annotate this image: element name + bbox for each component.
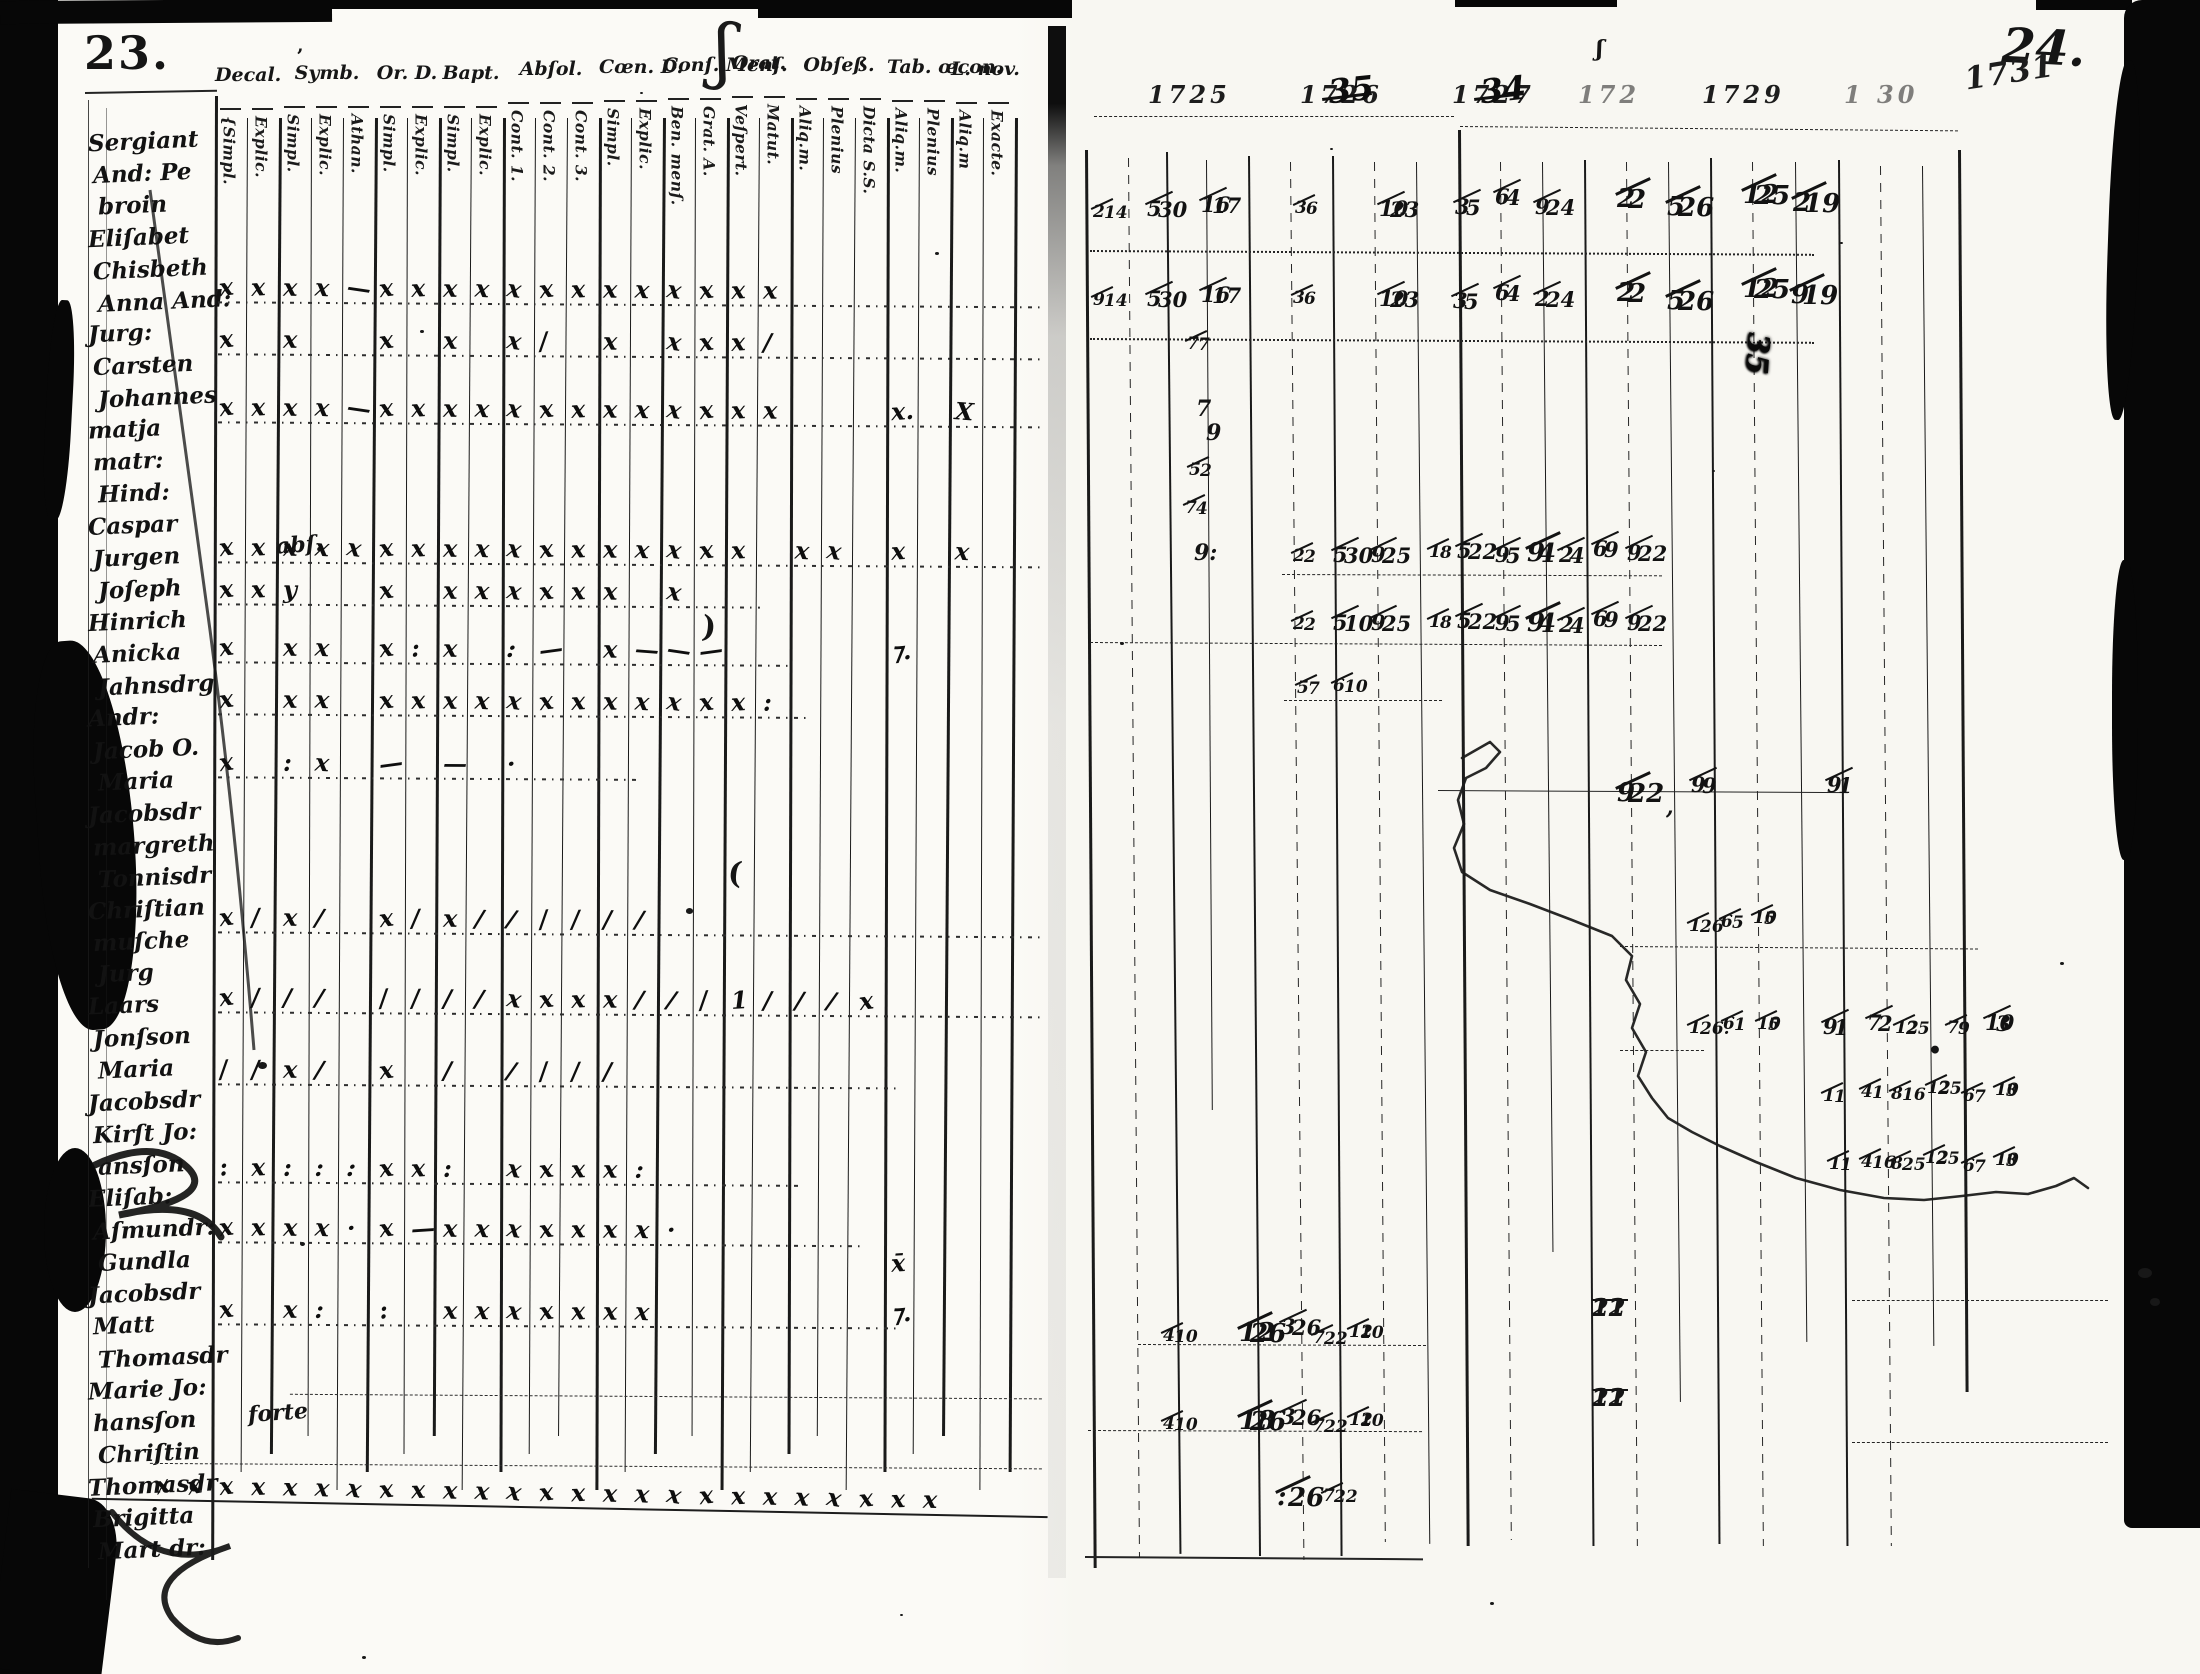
tally-mark: x bbox=[665, 329, 683, 355]
tally-mark: / bbox=[505, 907, 517, 932]
grid-line bbox=[211, 96, 217, 1560]
tally-mark: : bbox=[634, 1158, 645, 1183]
tally-mark: x bbox=[314, 750, 330, 775]
grid-line bbox=[1128, 158, 1140, 1558]
ink-speck bbox=[935, 252, 939, 255]
tally-mark: x bbox=[377, 578, 394, 604]
tally-mark: x bbox=[443, 689, 457, 713]
tally-mark: x bbox=[474, 1479, 490, 1504]
row-baseline bbox=[218, 561, 1042, 568]
tally-mark: x bbox=[443, 397, 457, 421]
tally-mark: x bbox=[634, 397, 650, 422]
tally-mark: x bbox=[505, 986, 523, 1012]
subcolumn-label: Simpl. bbox=[284, 114, 300, 173]
row-rule bbox=[1852, 1300, 2108, 1301]
year-label: 172 bbox=[1578, 80, 1640, 109]
tally-mark: x bbox=[730, 398, 746, 423]
fraction-denominator: 25 bbox=[1902, 1157, 1926, 1174]
fraction-denominator: 1 bbox=[1834, 1017, 1849, 1038]
tally-mark: x bbox=[890, 539, 906, 564]
column-group-label: Abſol. bbox=[503, 58, 599, 80]
tally-mark: / bbox=[314, 986, 325, 1011]
tally-mark: / bbox=[505, 1059, 517, 1084]
tally-mark: x bbox=[763, 399, 777, 423]
tally-mark: x bbox=[505, 578, 523, 604]
fraction-denominator: 30 bbox=[1158, 199, 1187, 220]
tally-mark: x bbox=[697, 397, 714, 423]
tally-mark: x bbox=[443, 1217, 457, 1241]
tally-mark: 1 bbox=[730, 988, 748, 1013]
tally-mark: x bbox=[505, 1298, 523, 1324]
tally-mark: x bbox=[603, 1482, 618, 1506]
year-label: 1 30 bbox=[1844, 80, 1918, 109]
tally-mark: / bbox=[763, 331, 772, 355]
column-group-label: Symb. bbox=[279, 62, 375, 84]
subcolumn-dash bbox=[444, 106, 465, 108]
tally-mark: / bbox=[794, 989, 805, 1014]
tally-mark: x bbox=[377, 536, 394, 562]
mark-row: xxxx:x:—x———⁊. bbox=[0, 632, 2200, 679]
subcolumn-dash bbox=[348, 106, 369, 108]
tally-mark: x bbox=[410, 396, 426, 421]
tally-mark: x bbox=[570, 579, 586, 604]
tally-mark: x bbox=[377, 276, 394, 302]
fraction-denominator: 10 bbox=[1174, 1417, 1198, 1434]
tally-mark: x bbox=[443, 637, 457, 661]
name-entry: Jacobsdr bbox=[87, 798, 200, 830]
tally-mark: x bbox=[537, 986, 554, 1012]
subcolumn-label: {Simpl. bbox=[220, 116, 236, 185]
tally-mark: x bbox=[570, 1217, 586, 1242]
scan-border-top-right bbox=[1455, 0, 1617, 7]
fraction-denominator: 17 bbox=[1212, 285, 1241, 306]
fraction-denominator: 4 bbox=[1506, 283, 1521, 304]
row-baseline bbox=[218, 421, 1042, 428]
tally-mark: / bbox=[314, 1058, 325, 1083]
subcolumn-dash bbox=[412, 106, 433, 108]
tally-mark: x bbox=[603, 580, 617, 604]
tally-mark: x bbox=[250, 1475, 266, 1500]
tally-mark: x bbox=[603, 278, 617, 302]
tally-mark: · bbox=[345, 1216, 357, 1241]
row-baseline bbox=[218, 301, 1042, 308]
tally-mark: x bbox=[474, 276, 490, 301]
tally-mark: x bbox=[603, 1158, 617, 1182]
subcolumn-dash bbox=[732, 96, 753, 98]
tally-mark: : bbox=[283, 1156, 292, 1180]
tally-mark: x bbox=[377, 1156, 394, 1182]
fraction-denominator: 19 bbox=[1804, 191, 1840, 217]
handwritten-mark: , bbox=[1666, 794, 1674, 820]
tally-mark: x bbox=[570, 1157, 586, 1182]
tally-mark: x bbox=[250, 577, 266, 602]
tally-mark: x bbox=[537, 536, 554, 562]
tally-mark: x bbox=[697, 689, 714, 715]
tally-mark: x bbox=[570, 987, 586, 1012]
tally-mark: x bbox=[665, 277, 683, 303]
tally-mark: : bbox=[283, 751, 292, 775]
grid-line bbox=[595, 118, 601, 1490]
tally-mark: x bbox=[603, 398, 617, 422]
row-rule bbox=[1852, 1442, 2108, 1443]
tally-mark: x bbox=[570, 397, 586, 422]
tally-mark: — bbox=[378, 750, 405, 777]
fraction-denominator: 1 bbox=[1734, 1017, 1746, 1034]
row-baseline bbox=[150, 1463, 1042, 1469]
tally-mark: x bbox=[505, 536, 523, 562]
name-entry: Jonſson bbox=[92, 1022, 191, 1053]
tally-mark: x bbox=[283, 1475, 298, 1499]
fraction-denominator: 26 bbox=[1288, 1485, 1324, 1511]
subcolumn-dash bbox=[476, 106, 497, 108]
handwritten-mark: 9: bbox=[1194, 540, 1217, 566]
mark-row: xxyxxxxxxxx bbox=[0, 574, 2200, 621]
page-gutter-shadow bbox=[1048, 26, 1066, 1578]
handwritten-mark: 7 bbox=[1196, 396, 1211, 422]
tally-mark: x bbox=[603, 690, 617, 714]
subcolumn-dash bbox=[988, 102, 1009, 104]
subcolumn-dash bbox=[700, 98, 721, 100]
row-baseline bbox=[290, 1394, 1042, 1400]
subcolumn-label: Simpl. bbox=[604, 108, 620, 167]
subcolumn-label: Simpl. bbox=[380, 114, 396, 173]
tally-mark: : bbox=[505, 637, 517, 662]
subcolumn-label: Aliq.m. bbox=[796, 106, 812, 171]
subcolumn-dash bbox=[860, 98, 881, 100]
fraction-denominator: 30 bbox=[1158, 289, 1187, 310]
tally-mark: : bbox=[345, 1156, 357, 1181]
tally-mark: — bbox=[345, 275, 372, 302]
subcolumn-label: Grat. A. bbox=[700, 106, 716, 177]
grid-line bbox=[88, 100, 89, 1568]
fraction-denominator: 23 bbox=[1390, 289, 1419, 310]
handwritten-note: ʃ bbox=[709, 7, 739, 93]
subcolumn-dash bbox=[252, 108, 273, 110]
tally-mark: — bbox=[665, 637, 692, 664]
fraction-denominator: 3 bbox=[2006, 1153, 2018, 1170]
fraction-denominator: 22 bbox=[1638, 543, 1667, 564]
subcolumn-label: Explic. bbox=[252, 116, 268, 178]
ink-speck bbox=[1840, 242, 1843, 244]
tally-mark: x bbox=[377, 1216, 394, 1242]
tally-mark: x bbox=[217, 1297, 234, 1323]
tally-mark: x bbox=[250, 395, 266, 420]
tally-mark: x bbox=[443, 537, 457, 561]
tally-mark: x bbox=[474, 578, 490, 603]
row-rule bbox=[1282, 574, 1662, 576]
fraction-denominator: 26 bbox=[1678, 289, 1714, 315]
handwritten-mark: 35 bbox=[1738, 331, 1776, 375]
tally-mark: x bbox=[505, 1156, 523, 1182]
fraction-denominator: 9 bbox=[1958, 1021, 1970, 1038]
column-group-label: Decal. bbox=[215, 64, 279, 86]
mark-row: xxxxx/xxxx/ bbox=[0, 324, 2200, 371]
tally-mark: / bbox=[250, 985, 260, 1010]
handwritten-note: ( bbox=[726, 855, 744, 891]
tally-mark: x bbox=[603, 1300, 617, 1324]
subcolumn-label: Explic. bbox=[316, 114, 332, 176]
tally-mark: · bbox=[665, 1218, 677, 1243]
row-rule bbox=[1090, 250, 1814, 256]
tally-mark: x bbox=[537, 276, 554, 302]
subcolumn-dash bbox=[892, 100, 913, 102]
tally-mark: x bbox=[443, 579, 457, 603]
fraction-denominator: 5 bbox=[1764, 911, 1776, 928]
tally-mark: x bbox=[283, 906, 297, 930]
tally-mark: x bbox=[537, 396, 554, 422]
tally-mark: x bbox=[634, 1482, 650, 1507]
tally-mark: / bbox=[217, 1057, 229, 1082]
tally-mark: x bbox=[377, 396, 394, 422]
fraction-denominator: 4 bbox=[1570, 615, 1585, 636]
tally-mark: : bbox=[763, 691, 772, 715]
tally-mark: / bbox=[570, 1059, 580, 1084]
tally-mark: / bbox=[825, 989, 837, 1014]
fraction-denominator: 24 bbox=[1546, 197, 1575, 218]
tally-mark: / bbox=[410, 906, 420, 931]
tally-mark: x bbox=[443, 1299, 457, 1323]
tally-mark: : bbox=[443, 1157, 452, 1181]
tally-mark: x bbox=[537, 688, 554, 714]
tally-mark: / bbox=[377, 986, 389, 1011]
tally-mark: x bbox=[794, 1485, 810, 1510]
tally-mark: x bbox=[314, 535, 330, 560]
tally-mark: / bbox=[665, 988, 677, 1013]
fraction-denominator: 9 bbox=[1702, 775, 1717, 796]
fraction-denominator: 7 bbox=[1308, 681, 1320, 698]
fraction-denominator: 9 bbox=[1604, 539, 1619, 560]
fraction-denominator: 4 bbox=[1196, 501, 1208, 518]
tally-mark: x bbox=[954, 539, 970, 564]
tally-mark: x bbox=[314, 687, 330, 712]
scan-border-top-mid bbox=[330, 0, 762, 9]
name-entry: hansſon bbox=[92, 1406, 196, 1437]
tally-mark: x bbox=[217, 327, 234, 353]
column-group-label: Or. D. bbox=[375, 62, 439, 84]
stack-value: 21 bbox=[1592, 1386, 1625, 1410]
tally-mark: x bbox=[730, 330, 746, 355]
fraction-denominator: 2 bbox=[1878, 1013, 1893, 1034]
column-group-label: L. nov. bbox=[951, 58, 1015, 80]
fraction-denominator: 24 bbox=[1546, 289, 1575, 310]
tally-mark: x bbox=[217, 577, 234, 603]
tally-mark: x bbox=[634, 1217, 650, 1242]
column-group-label: Bapt. bbox=[439, 62, 503, 84]
tally-mark: x bbox=[730, 1484, 746, 1509]
tally-mark: x bbox=[443, 907, 457, 931]
subcolumn-dash bbox=[764, 96, 785, 98]
tally-mark: x bbox=[283, 276, 297, 300]
tally-mark: x̄ bbox=[890, 1251, 906, 1276]
tally-mark: / bbox=[603, 908, 612, 932]
tally-mark: x bbox=[443, 277, 457, 301]
tally-mark: / bbox=[570, 907, 580, 932]
tally-mark: x bbox=[217, 985, 234, 1011]
ink-speck bbox=[300, 1242, 305, 1246]
tally-mark: x bbox=[185, 1473, 204, 1499]
column-group-label: Tab. œcon. bbox=[887, 56, 951, 78]
tally-mark: — bbox=[410, 1216, 435, 1241]
handwritten-note: forte bbox=[247, 1398, 309, 1428]
fraction-denominator: 3 bbox=[1996, 1013, 2011, 1034]
tally-mark: : bbox=[314, 1298, 325, 1323]
grid-line bbox=[846, 118, 857, 1490]
tally-mark: — bbox=[698, 637, 725, 664]
tally-mark: x bbox=[505, 688, 523, 714]
fraction-denominator: 25 bbox=[1754, 183, 1790, 209]
tally-mark: X bbox=[954, 399, 974, 424]
tally-mark: / bbox=[443, 1059, 452, 1083]
fraction-denominator: 23 bbox=[1390, 199, 1419, 220]
row-baseline bbox=[218, 1083, 900, 1089]
subcolumn-dash bbox=[636, 100, 657, 102]
mark-row: xxxx—xxxxxxxxxxxxxx.X bbox=[0, 392, 2200, 439]
ink-speck bbox=[900, 1614, 903, 1616]
scan-border-top-far-right bbox=[2036, 0, 2132, 10]
tally-mark: x bbox=[603, 988, 617, 1012]
fraction-denominator: 25 bbox=[1382, 545, 1411, 566]
fraction-denominator: 3 bbox=[2006, 1083, 2018, 1100]
tally-mark: x. bbox=[890, 399, 914, 424]
tally-mark: — bbox=[538, 636, 565, 663]
grid-line bbox=[462, 118, 473, 1490]
tally-mark: x bbox=[410, 1478, 426, 1503]
subcolumn-label: Cont. 3. bbox=[572, 110, 588, 182]
fraction-denominator: 10 bbox=[1344, 679, 1368, 696]
fraction-denominator: 22 bbox=[1468, 541, 1497, 562]
subcolumn-dash bbox=[604, 100, 625, 102]
subcolumn-dash bbox=[572, 102, 593, 104]
tally-mark: x bbox=[152, 1472, 172, 1499]
tally-mark: x bbox=[474, 688, 490, 713]
tally-mark: x bbox=[314, 1476, 330, 1501]
tally-mark: x bbox=[283, 636, 297, 660]
column-group-label: Orat. bbox=[727, 52, 791, 74]
scan-border-top-left bbox=[0, 0, 332, 24]
tally-mark: x bbox=[474, 396, 490, 421]
tally-mark: x bbox=[250, 535, 266, 560]
tally-mark: x bbox=[314, 1215, 330, 1240]
tally-mark: x bbox=[474, 1216, 490, 1241]
mark-row bbox=[0, 1364, 2200, 1411]
handwritten-mark: • bbox=[1928, 1038, 1942, 1064]
tally-mark: x bbox=[923, 1488, 938, 1512]
grid-line bbox=[1290, 162, 1305, 1560]
tally-mark: x bbox=[825, 538, 843, 564]
tally-mark: x bbox=[537, 1298, 554, 1324]
fraction-denominator: 14 bbox=[1104, 293, 1128, 310]
tally-mark: x bbox=[345, 1476, 363, 1502]
tally-mark: x bbox=[283, 328, 297, 352]
page-number-left: 23. bbox=[84, 26, 170, 80]
subcolumn-label: Plenius bbox=[924, 108, 940, 176]
mark-row: xx::xxxxxxx⁊. bbox=[0, 1294, 2200, 1341]
tally-mark: x bbox=[603, 538, 617, 562]
fraction-denominator: 6 bbox=[1304, 291, 1316, 308]
tally-mark: / bbox=[474, 907, 485, 932]
fraction-denominator: 7 bbox=[1198, 337, 1210, 354]
tally-mark: x bbox=[505, 1479, 523, 1505]
tally-mark: x bbox=[634, 689, 650, 714]
tally-mark: x bbox=[697, 537, 714, 563]
tally-mark: x bbox=[283, 536, 297, 560]
tally-mark: x bbox=[570, 277, 586, 302]
fraction-denominator: 25 bbox=[1906, 1021, 1930, 1038]
tally-mark: x bbox=[537, 578, 554, 604]
fraction-denominator: 5 bbox=[1732, 915, 1744, 932]
tally-mark: / bbox=[283, 986, 292, 1010]
fraction-denominator: 10 bbox=[1360, 1413, 1384, 1430]
tally-mark: — bbox=[443, 752, 467, 776]
tally-mark: x bbox=[217, 1215, 234, 1241]
tally-mark: x bbox=[217, 275, 234, 301]
tally-mark: x bbox=[505, 396, 523, 422]
name-entry: Sergiant bbox=[87, 126, 199, 158]
fraction-denominator: 4 bbox=[1506, 187, 1521, 208]
row-rule bbox=[1460, 126, 1958, 131]
ink-speck bbox=[362, 1656, 366, 1659]
grid-line bbox=[979, 118, 984, 1490]
tally-mark: x bbox=[474, 536, 490, 561]
tally-mark: x bbox=[378, 1477, 395, 1503]
fraction-denominator: 8 bbox=[1440, 545, 1452, 562]
tally-mark: — bbox=[634, 637, 660, 663]
tally-mark: x bbox=[217, 687, 234, 713]
tally-mark: : bbox=[314, 1156, 325, 1181]
tally-mark: x bbox=[217, 905, 234, 931]
fraction-denominator: 22 bbox=[1334, 1489, 1358, 1506]
tally-mark: / bbox=[603, 1060, 612, 1084]
tally-mark: x bbox=[250, 1215, 266, 1240]
fraction-denominator: 4 bbox=[1570, 545, 1585, 566]
tally-mark: : bbox=[217, 1155, 229, 1180]
subcolumn-label: Explic. bbox=[412, 114, 428, 176]
tally-mark: x bbox=[665, 579, 683, 605]
mark-row: xxxxxxxxxxxxxxxxxxxxx bbox=[0, 532, 2200, 579]
fraction-denominator: 25 bbox=[1754, 277, 1790, 303]
tally-mark: x bbox=[763, 1485, 778, 1509]
ink-speck bbox=[640, 92, 643, 94]
fraction-denominator: 2 bbox=[1304, 617, 1316, 634]
fraction-denominator: 6 bbox=[1306, 201, 1318, 218]
fraction-denominator: 2 bbox=[1200, 463, 1212, 480]
tally-mark: x bbox=[730, 278, 746, 303]
fraction-denominator: 1 bbox=[1840, 1157, 1852, 1174]
tally-mark: x bbox=[410, 536, 426, 561]
tally-mark: x bbox=[730, 690, 746, 715]
grid-line bbox=[1584, 160, 1594, 1546]
subcolumn-dash bbox=[380, 106, 401, 108]
fraction-denominator: 7 bbox=[1974, 1159, 1986, 1176]
subcolumn-label: Simpl. bbox=[444, 114, 460, 173]
ink-speck bbox=[1330, 148, 1333, 150]
grid-line bbox=[337, 118, 345, 1490]
fraction-denominator: 9 bbox=[1604, 609, 1619, 630]
fraction-denominator: 5 bbox=[1768, 1017, 1780, 1034]
tally-mark: x bbox=[443, 1479, 458, 1503]
subcolumn-dash bbox=[796, 98, 817, 100]
tally-mark: / bbox=[634, 988, 645, 1013]
fraction-denominator: 25 bbox=[1938, 1081, 1962, 1098]
fraction-denominator: 5 bbox=[1506, 613, 1521, 634]
subcolumn-dash bbox=[284, 106, 305, 108]
tally-mark: x bbox=[283, 1058, 297, 1082]
tally-mark: / bbox=[634, 908, 645, 933]
fraction-denominator: 22 bbox=[1468, 611, 1497, 632]
tally-mark: ⁊. bbox=[890, 1301, 912, 1326]
subcolumn-label: Explic. bbox=[636, 108, 652, 170]
tally-mark: x bbox=[665, 397, 683, 423]
